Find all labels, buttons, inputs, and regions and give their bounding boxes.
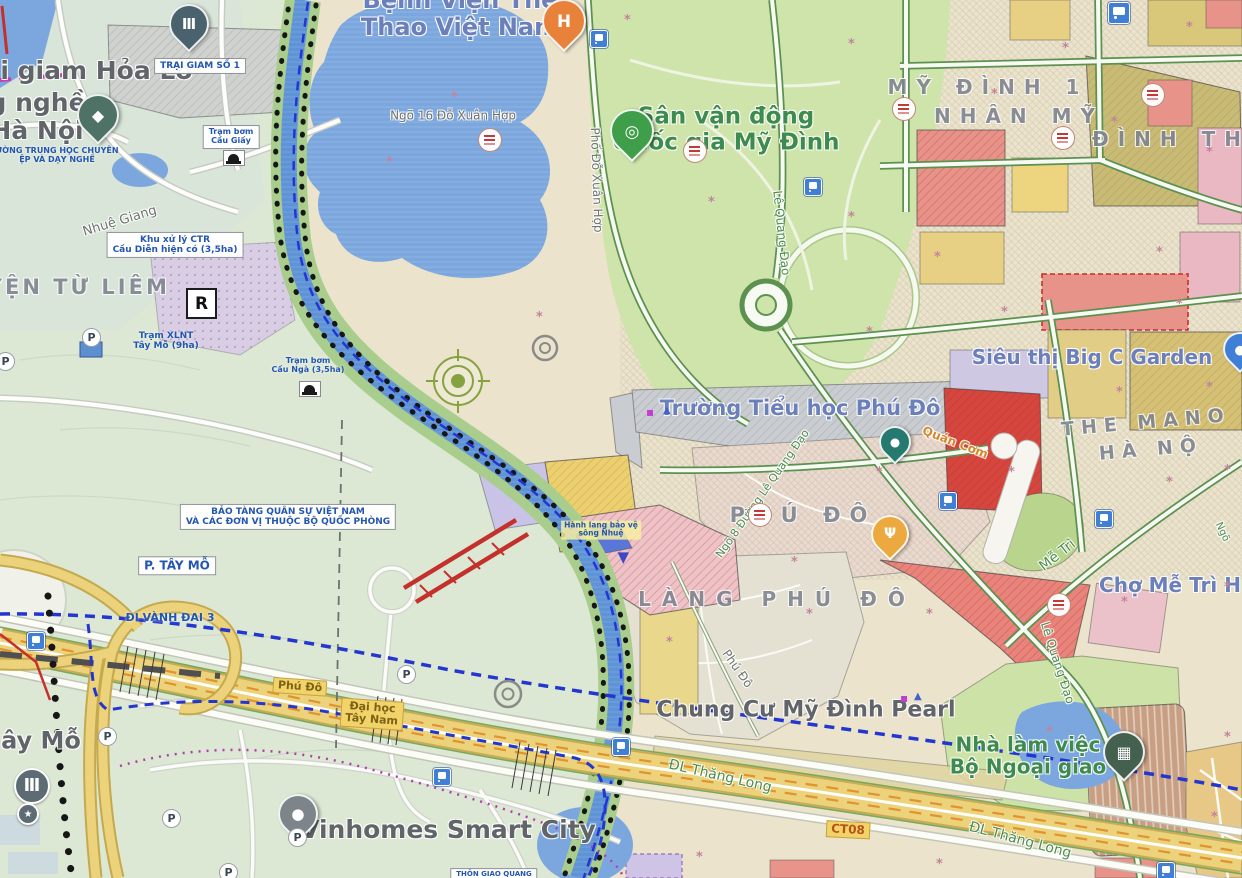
district-label-nhan-my: NHÂN MỸ <box>934 105 1104 127</box>
hanh-lang-triangle-icon: ▼ <box>618 550 630 565</box>
bridge-icon-cau-nga <box>299 381 321 397</box>
road-label-me-tri: Mễ Trì <box>1037 537 1079 575</box>
district-label-ha-no: HÀ NỘ <box>1098 435 1204 465</box>
poi-label-cho-me-tri[interactable]: Chợ Mễ Trì H <box>1099 574 1241 596</box>
transit-icon-le-quang-dao[interactable] <box>804 178 822 196</box>
road-label-ngo-16-do-xuan-hop: Ngõ 16 Đỗ Xuân Hợp <box>390 109 516 122</box>
flower-symbol-32: * <box>536 311 543 324</box>
road-label-le-quang-dao-1: Lê Quang Đạo <box>770 190 792 276</box>
flower-symbol-31: * <box>386 156 393 169</box>
district-label-the-mano: THE MANO <box>1060 405 1231 441</box>
map-viewport[interactable]: ại giam Hỏa LòTRẠI GIAM SỐ 1g nghề Hà Nộ… <box>0 0 1242 878</box>
hospital-pin-the-thao[interactable]: H <box>533 0 595 52</box>
bank-circle-marker[interactable]: Ⅲ <box>14 768 50 804</box>
transit-icon-my-dinh-ne[interactable] <box>1108 2 1130 24</box>
museum-pin-hoa-lo[interactable]: Ⅲ <box>161 0 218 52</box>
plan-label-cau-nga: Trạm bơm Cầu Ngà (3,5ha) <box>272 357 345 375</box>
school-marker-blue: ▲ <box>663 406 671 416</box>
road-label-dai-hoc-tay-nam: Đại học Tây Nam <box>340 698 405 731</box>
flower-symbol-4: * <box>1186 21 1193 34</box>
transit-icon-vanh-dai-3[interactable] <box>27 632 45 650</box>
transit-icon-bridge[interactable] <box>612 738 630 756</box>
school-pin-day-nghe[interactable]: ◆ <box>68 86 127 145</box>
road-label-ngo-8-le-quang-dao: Ngõ 8 Đường Lê Quang Đạo <box>714 428 812 561</box>
poi-pin-teal-glyph: ● <box>881 428 909 456</box>
parking-marker-6[interactable]: P <box>288 828 307 847</box>
flower-symbol-18: * <box>1224 464 1231 477</box>
flower-symbol-9: * <box>1206 146 1213 159</box>
vinhomes-pin-glyph: ● <box>280 796 316 832</box>
plan-label-bao-tang-quan-su: BẢO TÀNG QUÂN SỰ VIỆT NAM VÀ CÁC ĐƠN VỊ … <box>180 504 396 530</box>
poi-label-benh-vien-the-thao[interactable]: Bệnh Viện Thể Thao Việt Nam <box>361 0 559 41</box>
plan-label-thon-giao-quang: THÔN GIAO QUANG <box>450 868 537 878</box>
road-label-phu-do-street: Phú Đô <box>719 648 755 691</box>
poi-label-vinhomes-smart-city[interactable]: Vinhomes Smart City <box>300 816 596 844</box>
flower-symbol-5: * <box>708 196 715 209</box>
school-pin-day-nghe-glyph: ◆ <box>79 96 117 134</box>
restaurant-pin-phu-do[interactable]: Ψ <box>863 507 917 561</box>
transit-icon-thang-long-e[interactable] <box>1157 862 1175 878</box>
parking-marker-7[interactable]: P <box>219 863 238 878</box>
district-label-huyen-tu-liem: HUYỆN TỪ LIÊM <box>0 276 170 300</box>
transit-icon-me-tri[interactable] <box>1095 510 1113 528</box>
flower-symbol-10: * <box>934 251 941 264</box>
flower-symbol-26: * <box>1224 731 1231 744</box>
zone-code-badge-7 <box>1141 83 1165 107</box>
ministry-pin-bo-ngoai-giao[interactable]: ▦ <box>1094 723 1153 782</box>
flower-symbol-20: * <box>926 608 933 621</box>
restaurant-pin-phu-do-glyph: Ψ <box>873 517 907 551</box>
poi-label-tay-mo[interactable]: ây Mỗ <box>1 728 81 755</box>
flower-symbol-34: * <box>1156 246 1163 259</box>
star-circle-marker[interactable]: ★ <box>17 803 39 825</box>
flower-symbol-2: * <box>848 38 855 51</box>
parking-marker-3[interactable]: P <box>397 665 416 684</box>
flower-symbol-13: * <box>1116 386 1123 399</box>
poi-label-truong-tieu-hoc-phu-do[interactable]: Trường Tiểu học Phú Đô <box>660 397 941 421</box>
flower-symbol-14: * <box>1206 381 1213 394</box>
flower-symbol-28: * <box>936 858 943 871</box>
road-label-pho-do-xuan-hop: Phố Đỗ Xuân Hợp <box>587 127 604 232</box>
road-label-phu-do-highway: Phú Đô <box>272 677 327 697</box>
road-label-le-quang-dao-2: Lê Quang Đạo <box>1037 620 1076 705</box>
transit-icon-phu-do[interactable] <box>939 492 957 510</box>
pearl-marker-magenta: ▪ <box>900 692 908 704</box>
flower-symbol-33: * <box>866 326 873 339</box>
parking-marker-1[interactable]: P <box>82 328 101 347</box>
district-label-my-dinh-1: MỸ ĐÌNH 1 <box>888 76 1089 98</box>
poi-label-chung-cu-my-dinh-pearl[interactable]: Chung Cư Mỹ Đình Pearl <box>656 699 955 724</box>
plan-label-truong-thcn-day-nghe: ƯỜNG TRUNG HỌC CHUYÊN ỆP VÀ DẠY NGHỀ <box>0 147 119 165</box>
poi-label-quan-com[interactable]: Quán Cơm <box>920 424 989 461</box>
flower-symbol-23: * <box>666 636 673 649</box>
flower-symbol-17: * <box>1166 476 1173 489</box>
zone-code-badge-3 <box>892 97 916 121</box>
flower-symbol-15: * <box>876 466 883 479</box>
flower-symbol-7: * <box>991 88 998 101</box>
flower-symbol-3: * <box>1062 42 1069 55</box>
bridge-icon-cau-giay <box>223 150 245 166</box>
flower-symbol-30: * <box>451 91 458 104</box>
poi-label-truong-nghe-ha-noi[interactable]: g nghề Hà Nội <box>0 89 86 145</box>
transit-icon-do-xuan-hop[interactable] <box>590 30 608 48</box>
stadium-pin-my-dinh-glyph: ◎ <box>612 111 652 151</box>
flower-symbol-11: * <box>1001 306 1008 319</box>
zone-code-badge-2 <box>683 139 707 163</box>
flower-symbol-25: * <box>1046 726 1053 739</box>
flower-symbol-19: * <box>791 556 798 569</box>
parking-marker-5[interactable]: P <box>162 809 181 828</box>
museum-pin-hoa-lo-glyph: Ⅲ <box>171 6 207 42</box>
poi-label-big-c-garden[interactable]: Siêu thị Big C Garden <box>972 346 1213 368</box>
flower-symbol-6: * <box>848 211 855 224</box>
plan-label-tram-bom-cau-giay: Trạm bơm Cầu Giấy <box>203 125 260 149</box>
pearl-marker-blue: ▲ <box>914 692 922 702</box>
shopping-pin-big-c-glyph: ● <box>1225 334 1242 364</box>
water-label-nhue-giang: Nhuệ Giang <box>81 204 158 240</box>
flower-symbol-27: * <box>696 851 703 864</box>
ministry-pin-bo-ngoai-giao-glyph: ▦ <box>1105 733 1143 771</box>
flower-symbol-21: * <box>1121 596 1128 609</box>
r-zone-marker: R <box>186 288 217 319</box>
map-overlay: ại giam Hỏa LòTRẠI GIAM SỐ 1g nghề Hà Nộ… <box>0 0 1242 878</box>
zone-code-badge-5 <box>748 503 772 527</box>
stadium-pin-my-dinh[interactable]: ◎ <box>601 100 663 162</box>
road-label-ngo: Ngõ <box>1213 521 1232 544</box>
district-label-lang-phu-do: LÀNG PHÚ ĐÔ <box>638 588 916 610</box>
zone-code-badge-6 <box>1047 593 1071 617</box>
zone-code-badge-1 <box>478 128 502 152</box>
road-label-ct08: CT08 <box>826 820 871 840</box>
shopping-pin-big-c[interactable]: ● <box>1216 325 1242 373</box>
road-label-dl-thang-long-1: ĐL Thăng Long <box>667 758 773 797</box>
hospital-pin-the-thao-glyph: H <box>544 1 584 41</box>
plan-label-trai-giam-so-1: TRẠI GIAM SỐ 1 <box>154 58 246 74</box>
poi-label-trai-giam-hoa-lo[interactable]: ại giam Hỏa Lò <box>0 57 193 85</box>
plan-label-tram-xlnt: Trạm XLNT Tây Mỗ (9ha) <box>133 331 198 351</box>
plan-label-khu-xu-ly-ctr: Khu xử lý CTR Cầu Diễn hiện có (3,5ha) <box>107 232 244 258</box>
flower-symbol-8: * <box>1111 116 1118 129</box>
parking-marker-2[interactable]: P <box>0 352 15 371</box>
road-label-dl-thang-long-2: ĐL Thăng Long <box>967 820 1073 862</box>
flower-symbol-22: * <box>1224 581 1231 594</box>
district-label-dinh-th: ĐÌNH TH <box>1092 128 1242 150</box>
poi-label-nha-lam-viec-bo-ngoai-giao[interactable]: Nhà làm việc Bộ Ngoại giao <box>950 734 1106 779</box>
transit-icon-thang-long-w[interactable] <box>433 768 451 786</box>
flower-symbol-24: * <box>806 608 813 621</box>
zone-code-badge-4 <box>1051 126 1075 150</box>
poi-pin-teal[interactable]: ● <box>872 420 917 465</box>
flower-symbol-29: * <box>1211 811 1218 824</box>
flower-symbol-12: * <box>1176 298 1183 311</box>
flower-symbol-1: * <box>624 14 631 27</box>
parking-marker-4[interactable]: P <box>98 727 117 746</box>
plan-label-p-tay-mo: P. TÂY MỖ <box>138 556 216 575</box>
school-marker-magenta: ▪ <box>646 406 654 418</box>
flower-symbol-16: * <box>1008 466 1015 479</box>
plan-label-di-vanh-dai-3: ĐI VÀNH ĐAI 3 <box>126 612 215 624</box>
plan-label-hanh-lang-song-nhue: Hành lang bảo vệ sông Nhuệ <box>561 521 641 540</box>
